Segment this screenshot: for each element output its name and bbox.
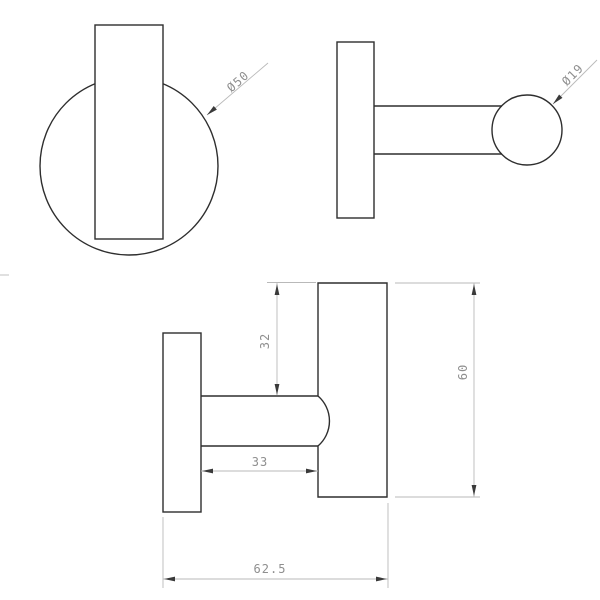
- top-view: Ø19: [337, 42, 597, 218]
- dimension-33: 33: [201, 455, 318, 473]
- dimension-62-5: 62.5: [163, 503, 388, 588]
- arrowhead-icon: [275, 284, 280, 295]
- arrowhead-icon: [164, 577, 175, 582]
- arrowhead-icon: [472, 485, 477, 496]
- side-view: 32 33 60 62.5: [163, 283, 480, 589]
- dimension-60: 60: [395, 283, 480, 497]
- tip-diameter-leader: Ø19: [551, 60, 597, 106]
- plate-diameter-leader: Ø50: [205, 63, 268, 117]
- wall-plate-side: [163, 333, 201, 512]
- bar-offset-label: 32: [258, 333, 272, 349]
- overall-depth-label: 62.5: [254, 562, 287, 576]
- arrowhead-icon: [306, 469, 317, 474]
- plate-diameter-label: Ø50: [224, 68, 252, 95]
- arrowhead-icon: [376, 577, 387, 582]
- tip-diameter-label: Ø19: [559, 61, 586, 88]
- post-length-label: 33: [252, 455, 268, 469]
- front-view: Ø50: [40, 25, 268, 255]
- hook-tip-circle: [492, 95, 562, 165]
- arrowhead-icon: [472, 284, 477, 295]
- arrowhead-icon: [275, 384, 280, 395]
- bar-length-label: 60: [456, 364, 470, 380]
- hook-bar-front: [95, 25, 163, 239]
- hook-bar-side: [318, 283, 387, 497]
- technical-drawing-canvas: Ø50 Ø19 32 3: [0, 0, 600, 600]
- dimension-32: 32: [258, 283, 316, 396]
- arrowhead-icon: [202, 469, 213, 474]
- wall-plate-edge: [337, 42, 374, 218]
